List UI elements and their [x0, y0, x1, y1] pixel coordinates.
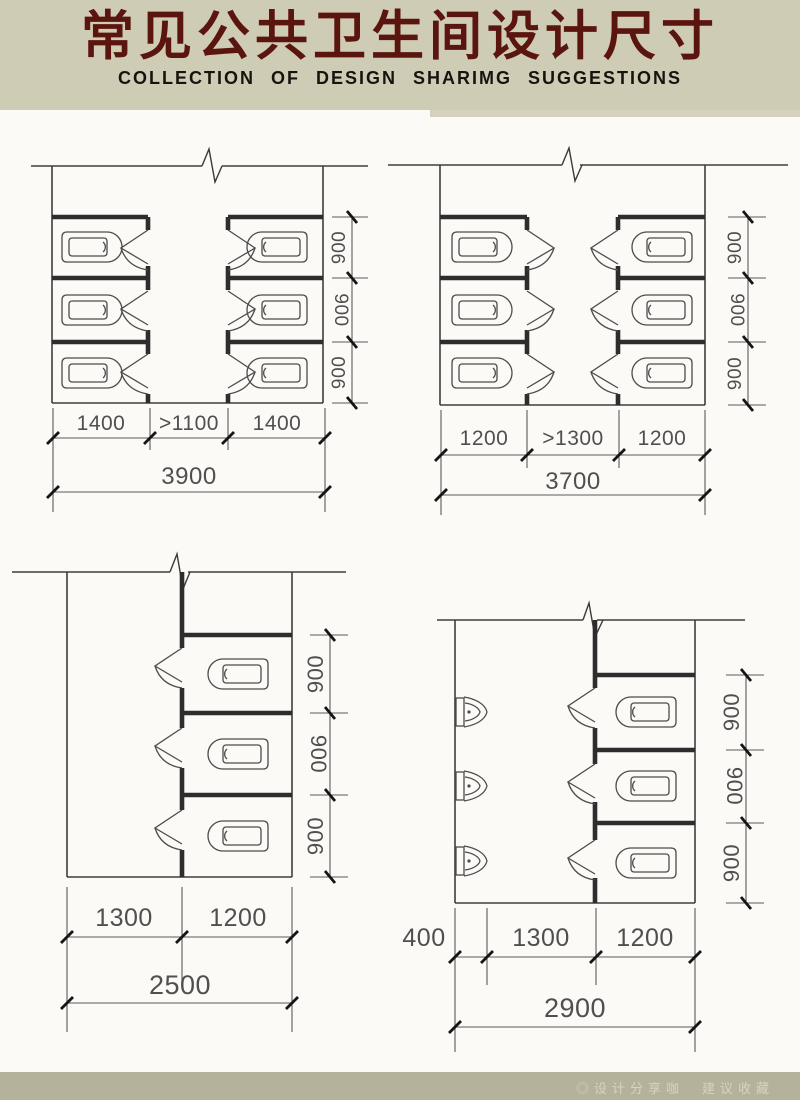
room-walls — [52, 166, 323, 403]
squat-toilet-icon — [452, 295, 512, 325]
door-swing-icon — [568, 688, 595, 728]
dim-label-depth: 900 — [329, 356, 350, 389]
door-swing-icon — [591, 354, 618, 394]
wall-break-icon — [562, 148, 582, 181]
door-swing-icon — [155, 810, 182, 850]
squat-toilet-icon — [632, 358, 692, 388]
dim-label-total: 2900 — [544, 993, 606, 1023]
squat-toilet-icon — [208, 739, 268, 769]
door-swing-icon — [155, 728, 182, 768]
dim-label-depth: 900 — [330, 293, 351, 326]
door-swing-icon — [121, 354, 148, 394]
door-swing-icon — [568, 764, 595, 804]
dim-label-width: 1200 — [460, 427, 509, 450]
door-swing-icon — [228, 354, 255, 394]
diagram-single-row-1200: 900 900 900 1300 1200 2500 — [12, 554, 348, 1032]
stall-partitions-right — [228, 217, 323, 342]
door-swing-icon — [121, 230, 148, 270]
poster-page: 常见公共卫生间设计尺寸 COLLECTION OF DESIGN SHARIMG… — [0, 0, 800, 1100]
dim-label-total: 3900 — [161, 463, 216, 490]
watermark-text: ◎设计分享咖 建议收藏 — [576, 1078, 774, 1097]
squat-toilet-icon — [208, 659, 268, 689]
diagram-double-row-1200: 900 900 900 1200 >1300 1200 3700 — [388, 148, 788, 515]
dim-label-depth: 900 — [306, 735, 331, 773]
width-dim-chain — [441, 410, 705, 515]
dim-label-width: 400 — [402, 924, 445, 952]
squat-toilet-icon — [616, 848, 676, 878]
dim-label-width: 1300 — [512, 924, 570, 952]
dim-label-depth: 900 — [722, 767, 747, 805]
diagram-double-row-1400: 900 900 900 1400 >1100 1400 3900 — [31, 149, 368, 512]
door-swing-icon — [591, 230, 618, 270]
page-subtitle: COLLECTION OF DESIGN SHARIMG SUGGESTIONS — [0, 68, 800, 89]
header-band: 常见公共卫生间设计尺寸 COLLECTION OF DESIGN SHARIMG… — [0, 0, 800, 110]
door-swing-icon — [527, 230, 554, 270]
urinal-icon — [456, 771, 487, 801]
dim-label-depth: 900 — [719, 844, 744, 882]
footer-band: ◎设计分享咖 建议收藏 — [0, 1072, 800, 1100]
dim-label-width: 1200 — [638, 427, 687, 450]
dim-label-total: 3700 — [545, 468, 600, 495]
dim-label-total: 2500 — [149, 970, 211, 1000]
dim-label-depth: 900 — [726, 293, 747, 326]
squat-toilet-icon — [452, 358, 512, 388]
squat-toilet-icon — [62, 358, 122, 388]
room-walls — [455, 620, 695, 903]
dim-label-width: 1400 — [77, 412, 126, 435]
dim-label-depth: 900 — [725, 231, 746, 264]
door-swing-icon — [527, 291, 554, 331]
dim-label-width: 1200 — [616, 924, 674, 952]
stall-partitions-left — [52, 217, 148, 342]
door-swing-icon — [591, 291, 618, 331]
squat-toilet-icon — [616, 697, 676, 727]
room-walls — [67, 572, 292, 877]
squat-toilet-icon — [632, 232, 692, 262]
squat-toilet-icon — [247, 232, 307, 262]
door-swing-icon — [121, 291, 148, 331]
wall-break-icon — [202, 149, 222, 182]
squat-toilet-icon — [632, 295, 692, 325]
squat-toilet-icon — [62, 232, 122, 262]
dim-label-depth: 900 — [303, 655, 328, 693]
dim-label-width: 1300 — [95, 904, 153, 932]
dim-label-width: 1400 — [253, 412, 302, 435]
squat-toilet-icon — [62, 295, 122, 325]
squat-toilet-icon — [247, 295, 307, 325]
door-swing-icon — [527, 354, 554, 394]
dim-label-width: >1100 — [159, 412, 219, 435]
urinal-icon — [456, 846, 487, 876]
door-swing-icon — [155, 648, 182, 688]
urinal-icon — [456, 697, 487, 727]
squat-toilet-icon — [452, 232, 512, 262]
squat-toilet-icon — [616, 771, 676, 801]
dim-label-depth: 900 — [719, 693, 744, 731]
dim-label-depth: 900 — [725, 357, 746, 390]
diagram-single-row-urinals: 900 900 900 400 1300 1200 2900 — [402, 603, 764, 1052]
squat-toilet-icon — [208, 821, 268, 851]
page-title: 常见公共卫生间设计尺寸 — [0, 0, 800, 66]
door-swing-icon — [568, 840, 595, 880]
dim-label-depth: 900 — [329, 231, 350, 264]
room-walls — [440, 165, 705, 405]
dim-label-width: 1200 — [209, 904, 267, 932]
floor-plan-canvas: 900 900 900 1400 >1100 1400 3900 — [0, 110, 800, 1072]
squat-toilet-icon — [247, 358, 307, 388]
door-swing-icon — [228, 291, 255, 331]
dim-label-width: >1300 — [542, 427, 603, 450]
dim-label-depth: 900 — [303, 817, 328, 855]
